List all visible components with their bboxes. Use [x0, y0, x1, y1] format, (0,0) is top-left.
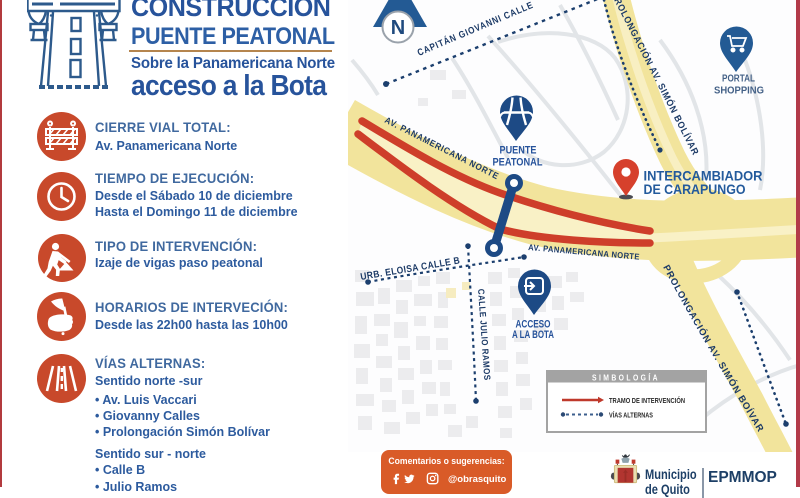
svg-text:DE CARAPUNGO: DE CARAPUNGO [644, 181, 746, 197]
svg-text:VÍAS ALTERNAS: VÍAS ALTERNAS [609, 411, 653, 420]
svg-text:PORTAL: PORTAL [722, 73, 755, 85]
svg-text:PEATONAL: PEATONAL [493, 157, 543, 169]
svg-text:A LA BOTA: A LA BOTA [512, 329, 554, 341]
svg-text:SIMBOLOGÍA: SIMBOLOGÍA [592, 373, 660, 383]
svg-text:TRAMO DE INTERVENCIÓN: TRAMO DE INTERVENCIÓN [609, 396, 685, 405]
svg-text:PUENTE: PUENTE [500, 145, 537, 157]
svg-text:SHOPPING: SHOPPING [714, 85, 764, 97]
svg-text:N: N [391, 17, 405, 39]
